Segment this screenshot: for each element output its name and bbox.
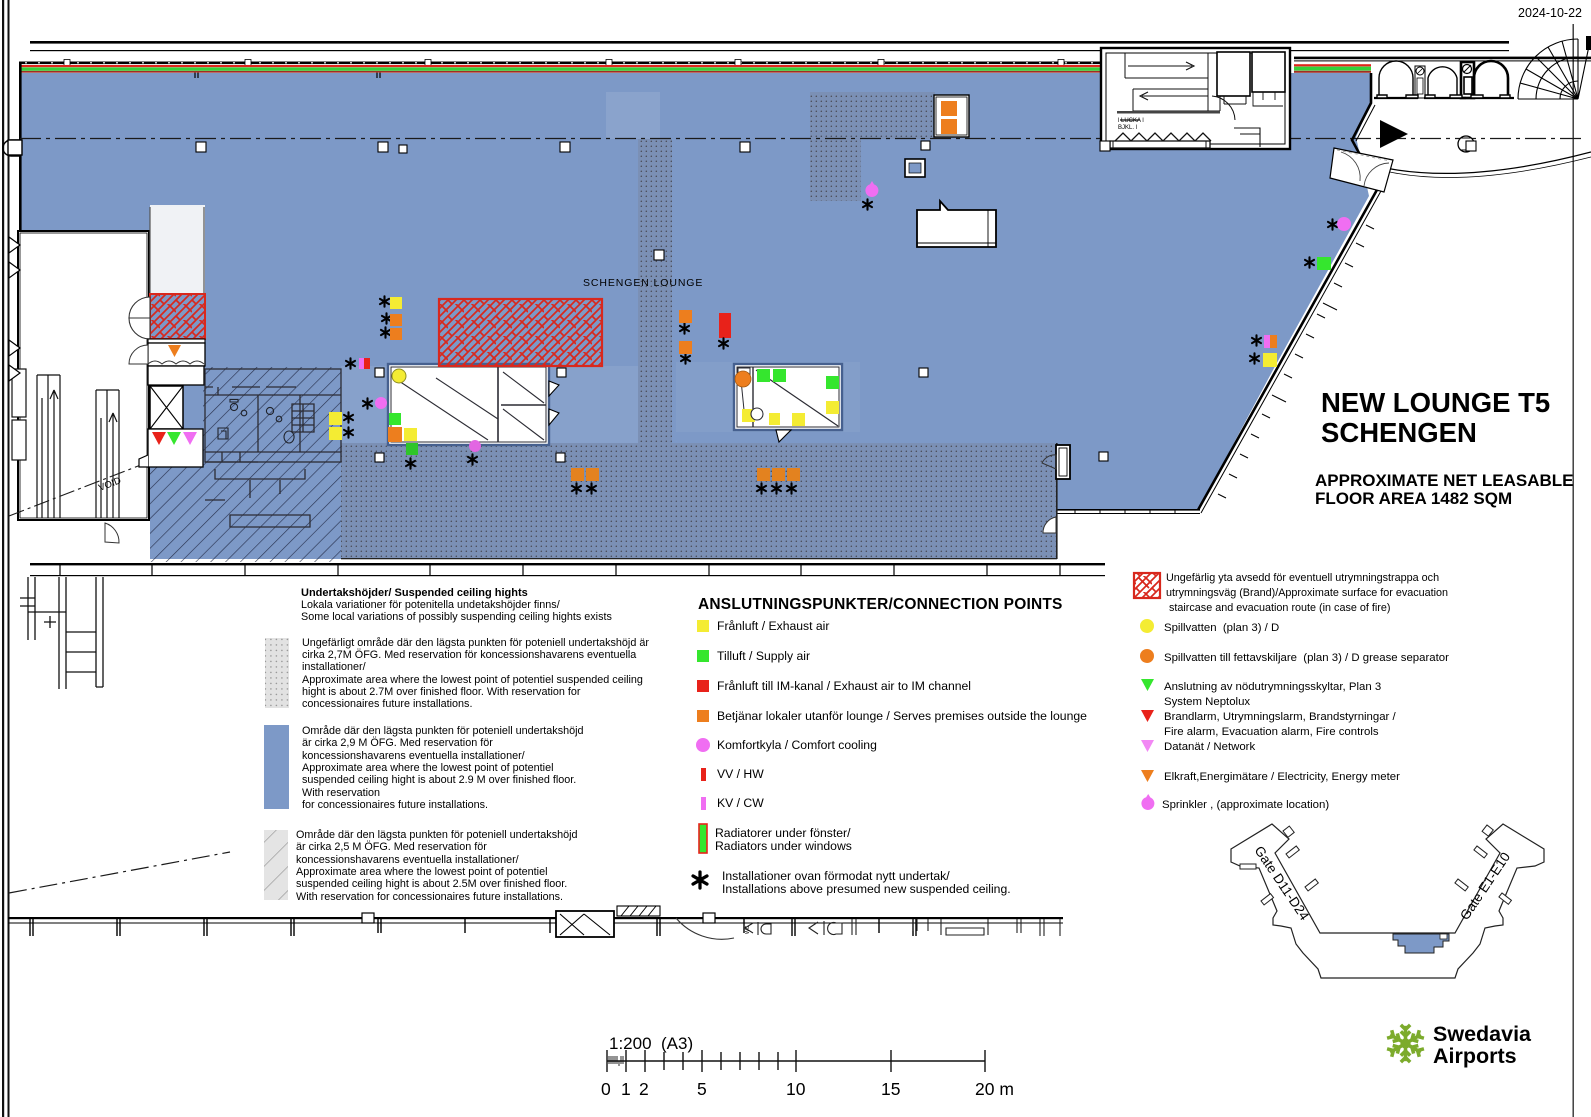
svg-text:BJKL. l: BJKL. l [1118, 125, 1137, 131]
svg-text:Sprinkler , (approximate locat: Sprinkler , (approximate location) [1162, 799, 1329, 811]
svg-text:KV / CW: KV / CW [717, 796, 764, 810]
svg-text:är cirka 2,5 M ÖFG. Med reserv: är cirka 2,5 M ÖFG. Med reservation för [296, 841, 487, 853]
svg-text:l LUCKA l: l LUCKA l [1118, 118, 1144, 124]
svg-text:Some local variations of possi: Some local variations of possibly suspen… [301, 611, 612, 623]
svg-text:With reservation: With reservation [302, 787, 380, 799]
svg-text:1: 1 [621, 1079, 631, 1099]
svg-text:Swedavia: Swedavia [1433, 1022, 1532, 1046]
svg-text:20 m: 20 m [975, 1079, 1014, 1099]
svg-text:Tilluft / Supply air: Tilluft / Supply air [717, 649, 810, 663]
svg-text:Airports: Airports [1433, 1044, 1517, 1068]
svg-text:Betjänar lokaler utanför loung: Betjänar lokaler utanför lounge / Serves… [717, 709, 1087, 723]
svg-text:Spillvatten (plan 3) / D: Spillvatten (plan 3) / D [1164, 622, 1279, 634]
svg-text:With reservation for concessio: With reservation for concessionaires fut… [296, 891, 563, 903]
svg-text:suspended ceiling hight is abo: suspended ceiling hight is about 2.9 M o… [302, 774, 576, 786]
svg-text:cirka 2,7M ÖFG. Med reservatio: cirka 2,7M ÖFG. Med reservation för konc… [302, 649, 636, 661]
svg-text:installationer/: installationer/ [302, 661, 366, 673]
svg-text:Radiators under windows: Radiators under windows [715, 839, 852, 853]
svg-text:FLOOR AREA 1482 SQM: FLOOR AREA 1482 SQM [1315, 489, 1512, 508]
svg-text:Ungefärlig yta avsedd för even: Ungefärlig yta avsedd för eventuell utry… [1166, 572, 1439, 584]
svg-text:0: 0 [601, 1079, 611, 1099]
svg-text:Approximate area where the low: Approximate area where the lowest point … [296, 866, 547, 878]
svg-text:Anslutning av nödutrymningssky: Anslutning av nödutrymningsskyltar, Plan… [1164, 681, 1381, 693]
svg-text:15: 15 [881, 1079, 900, 1099]
svg-text:Approximate area where the low: Approximate area where the lowest point … [302, 762, 553, 774]
svg-text:2024-10-22: 2024-10-22 [1518, 6, 1582, 20]
svg-text:Komfortkyla / Comfort cooling: Komfortkyla / Comfort cooling [717, 738, 877, 752]
svg-text:ANSLUTNINGSPUNKTER/CONNECTION: ANSLUTNINGSPUNKTER/CONNECTION POINTS [698, 596, 1063, 613]
svg-text:Approximate area where the low: Approximate area where the lowest point … [302, 674, 643, 686]
svg-text:Installationer ovan förmodat n: Installationer ovan förmodat nytt undert… [722, 869, 950, 883]
svg-text:Datanät / Network: Datanät / Network [1164, 741, 1255, 753]
svg-text:Undertakshöjder/ Suspended cei: Undertakshöjder/ Suspended ceiling hight… [301, 587, 528, 599]
svg-text:concessionaires future install: concessionaires future installations. [302, 698, 472, 710]
svg-text:VV / HW: VV / HW [717, 767, 764, 781]
svg-text:Lokala variationer för potenit: Lokala variationer för potenitella undet… [301, 599, 560, 611]
svg-text:5: 5 [697, 1079, 707, 1099]
svg-text:Brandlarm, Utrymningslarm, Bra: Brandlarm, Utrymningslarm, Brandstyrning… [1164, 711, 1397, 723]
svg-text:2: 2 [639, 1079, 649, 1099]
svg-text:SCHENGEN LOUNGE: SCHENGEN LOUNGE [583, 277, 703, 289]
svg-text:Frånluft / Exhaust air: Frånluft / Exhaust air [717, 619, 829, 633]
svg-text:Fire alarm, Evacuation alarm,: Fire alarm, Evacuation alarm, Fire contr… [1164, 726, 1379, 738]
svg-text:utrymningsväg (Brand)/Approxim: utrymningsväg (Brand)/Approximate surfac… [1166, 587, 1448, 599]
svg-text:Område där den lägsta punkten: Område där den lägsta punkten för poteni… [296, 829, 578, 841]
svg-text:Installations above presumed n: Installations above presumed new suspend… [722, 882, 1011, 896]
svg-text:Frånluft till IM-kanal / Exhau: Frånluft till IM-kanal / Exhaust air to … [717, 679, 971, 693]
svg-text:koncessionshavarens eventuella: koncessionshavarens eventuella installat… [302, 750, 525, 762]
svg-text:Radiatorer under fönster/: Radiatorer under fönster/ [715, 826, 851, 840]
svg-text:for concessionaires future ins: for concessionaires future installations… [302, 799, 488, 811]
svg-text:koncessionshavarens eventuella: koncessionshavarens eventuella installat… [296, 854, 519, 866]
svg-text:hight is about 2.7M over finis: hight is about 2.7M over finished floor.… [302, 686, 581, 698]
svg-text:1:200 (A3): 1:200 (A3) [609, 1034, 693, 1053]
svg-text:SCHENGEN: SCHENGEN [1321, 417, 1477, 448]
svg-text:Ungefärligt område där den läg: Ungefärligt område där den lägsta punkte… [302, 637, 649, 649]
svg-text:System Neptolux: System Neptolux [1164, 696, 1250, 708]
svg-text:10: 10 [786, 1079, 806, 1099]
svg-text:WC: WC [745, 925, 751, 934]
svg-text:APPROXIMATE NET LEASABLE: APPROXIMATE NET LEASABLE [1315, 471, 1573, 490]
svg-text:staircase and evacuation route: staircase and evacuation route (in case … [1169, 602, 1390, 614]
svg-text:är cirka 2,9 M ÖFG. Med reserv: är cirka 2,9 M ÖFG. Med reservation för [302, 737, 493, 749]
svg-text:Elkraft,Energimätare / Electri: Elkraft,Energimätare / Electricity, Ener… [1164, 771, 1400, 783]
svg-text:Område där den lägsta punkten: Område där den lägsta punkten för poteni… [302, 725, 584, 737]
svg-text:NEW LOUNGE T5: NEW LOUNGE T5 [1321, 387, 1550, 418]
svg-text:Spillvatten till fettavskiljar: Spillvatten till fettavskiljare (plan 3)… [1164, 652, 1449, 664]
svg-text:suspended ceiling hight is abo: suspended ceiling hight is about 2.5M ov… [296, 878, 567, 890]
